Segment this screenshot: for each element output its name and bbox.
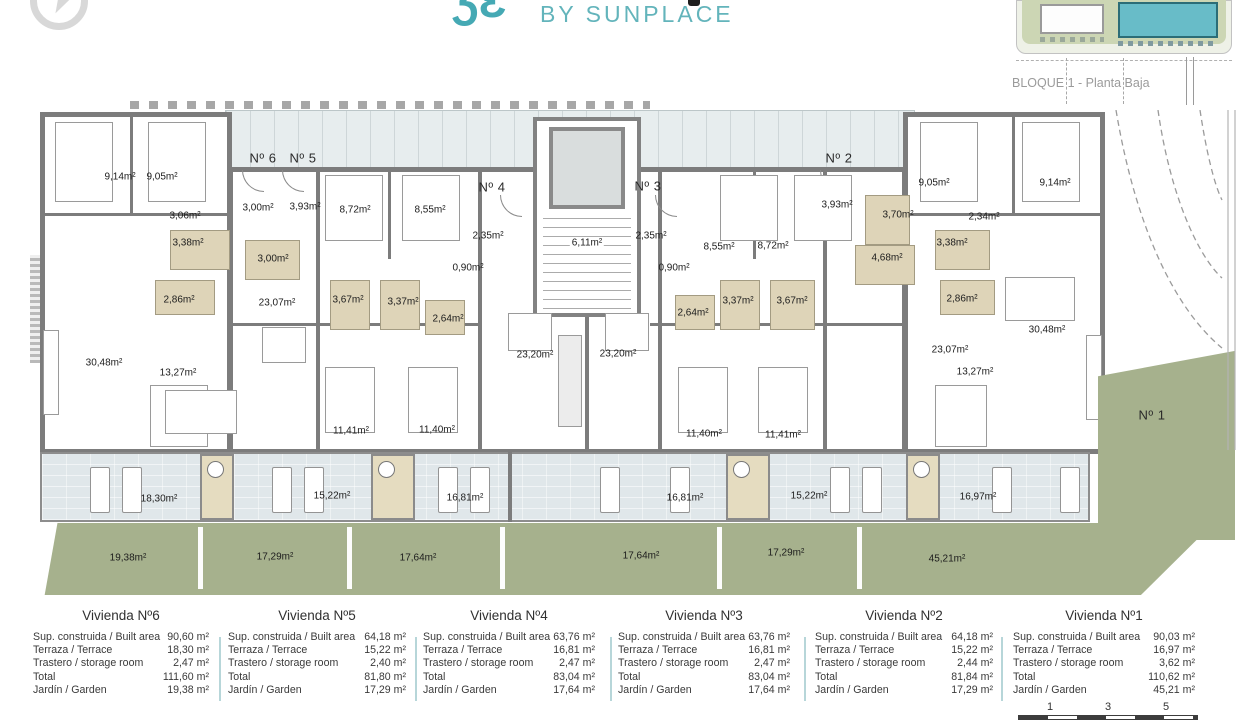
terrace-area-label: 18,30m² xyxy=(141,494,178,505)
elevator xyxy=(549,127,625,209)
garden-divider xyxy=(717,527,722,589)
row-label: Total xyxy=(1013,671,1035,684)
room-area-label: 3,00m² xyxy=(242,203,273,214)
row-value: 18,30 m² xyxy=(167,644,209,657)
row-value: 90,60 m² xyxy=(167,631,209,644)
row-label: Terraza / Terrace xyxy=(1013,644,1092,657)
table-divider xyxy=(610,637,612,701)
row-label: Jardín / Garden xyxy=(618,684,692,697)
room-area-label: 3,37m² xyxy=(722,296,753,307)
vivienda-column: Vivienda Nº4 Sup. construida / Built are… xyxy=(423,608,595,697)
bathroom-floor xyxy=(855,245,915,285)
garden-divider xyxy=(347,527,352,589)
kitchen-counter xyxy=(558,335,582,427)
garden-area-label: 17,29m² xyxy=(257,552,294,563)
row-label: Total xyxy=(423,671,445,684)
floor-plan: Nº 6 Nº 5 Nº 4 Nº 3 Nº 2 Nº 1 9,14m² 9,0… xyxy=(30,95,1220,605)
room-area-label: 3,67m² xyxy=(776,296,807,307)
room-area-label: 2,64m² xyxy=(677,308,708,319)
row-value: 63,76 m² xyxy=(748,631,790,644)
garden-area-label: 17,29m² xyxy=(768,548,805,559)
row-label: Trastero / storage room xyxy=(228,657,338,670)
room-wall xyxy=(1012,112,1015,215)
room-area-label: 9,05m² xyxy=(918,178,949,189)
washer-icon xyxy=(378,461,395,478)
table-divider xyxy=(415,637,417,701)
row-label: Total xyxy=(228,671,250,684)
row-value: 2,47 m² xyxy=(559,657,595,670)
row-label: Trastero / storage room xyxy=(423,657,533,670)
unit-number-label: Nº 2 xyxy=(826,151,853,166)
room-area-label: 8,55m² xyxy=(703,242,734,253)
room-wall xyxy=(585,317,589,454)
row-label: Jardín / Garden xyxy=(1013,684,1087,697)
row-label: Sup. construida / Built area xyxy=(1013,631,1140,644)
room-area-label: 23,07m² xyxy=(259,298,296,309)
vivienda-column: Vivienda Nº5 Sup. construida / Built are… xyxy=(228,608,406,697)
unit-number-label: Nº 1 xyxy=(1139,408,1166,423)
garden-divider xyxy=(857,527,862,589)
dining-table xyxy=(508,313,552,351)
sun-lounger xyxy=(670,467,690,513)
room-wall xyxy=(130,112,133,215)
terrace-area-label: 15,22m² xyxy=(791,491,828,502)
bed xyxy=(678,367,728,433)
storage-room xyxy=(200,454,234,520)
bed xyxy=(920,122,978,202)
room-area-label: 23,07m² xyxy=(932,345,969,356)
row-label: Total xyxy=(618,671,640,684)
sun-lounger xyxy=(600,467,620,513)
room-area-label: 3,93m² xyxy=(289,202,320,213)
key-plan-windows xyxy=(1040,37,1104,42)
sun-lounger xyxy=(1060,467,1080,513)
dining-table xyxy=(1005,277,1075,321)
row-label: Sup. construida / Built area xyxy=(618,631,745,644)
road-dashed-line xyxy=(1016,60,1232,61)
row-label: Jardín / Garden xyxy=(228,684,302,697)
table-divider xyxy=(804,637,806,701)
row-value: 16,97 m² xyxy=(1153,644,1195,657)
room-area-label: 3,67m² xyxy=(332,295,363,306)
washer-icon xyxy=(207,461,224,478)
boundary-curves xyxy=(1110,110,1240,455)
storage-room xyxy=(726,454,770,520)
bed xyxy=(720,175,778,241)
row-value: 17,64 m² xyxy=(553,684,595,697)
row-value: 90,03 m² xyxy=(1153,631,1195,644)
row-label: Jardín / Garden xyxy=(33,684,107,697)
room-area-label: 3,00m² xyxy=(257,254,288,265)
bed xyxy=(408,367,458,433)
vivienda-column: Vivienda Nº1 Sup. construida / Built are… xyxy=(1013,608,1195,697)
key-plan-building-2 xyxy=(1040,4,1104,34)
unit-number-label: Nº 6 xyxy=(250,151,277,166)
sun-lounger xyxy=(862,467,882,513)
row-label: Trastero / storage room xyxy=(33,657,143,670)
vivienda-column: Vivienda Nº3 Sup. construida / Built are… xyxy=(618,608,790,697)
dining-table xyxy=(262,327,306,363)
bathroom-floor xyxy=(935,230,990,270)
room-area-label: 3,70m² xyxy=(882,210,913,221)
compass-needle xyxy=(47,0,76,18)
vivienda-column: Vivienda Nº2 Sup. construida / Built are… xyxy=(815,608,993,697)
room-area-label: 6,11m² xyxy=(570,238,604,249)
row-value: 64,18 m² xyxy=(951,631,993,644)
site-key-plan xyxy=(1016,0,1232,56)
scale-tick: 5 xyxy=(1163,701,1169,713)
brand-subtitle: BY SUNPLACE xyxy=(540,1,734,28)
room-area-label: 9,05m² xyxy=(146,172,177,183)
garden-area-label: 17,64m² xyxy=(623,551,660,562)
room-area-label: 23,20m² xyxy=(600,349,637,360)
row-value: 63,76 m² xyxy=(553,631,595,644)
room-area-label: 2,35m² xyxy=(472,231,503,242)
room-area-label: 0,90m² xyxy=(452,263,483,274)
room-area-label: 30,48m² xyxy=(1029,325,1066,336)
bed xyxy=(1022,122,1080,202)
scale-bar xyxy=(1018,715,1198,720)
terrace-area-label: 16,81m² xyxy=(447,493,484,504)
garden-divider xyxy=(198,527,203,589)
room-area-label: 11,40m² xyxy=(419,425,455,436)
room-area-label: 11,40m² xyxy=(686,429,722,440)
washer-icon xyxy=(733,461,750,478)
room-area-label: 2,86m² xyxy=(163,295,194,306)
row-value: 45,21 m² xyxy=(1153,684,1195,697)
vivienda-title: Vivienda Nº2 xyxy=(815,608,993,623)
garden-area-label: 45,21m² xyxy=(929,554,966,565)
room-area-label: 11,41m² xyxy=(765,430,801,441)
row-value: 81,84 m² xyxy=(951,671,993,684)
row-value: 83,04 m² xyxy=(553,671,595,684)
storage-room xyxy=(371,454,415,520)
terrace-area-label: 16,97m² xyxy=(960,492,997,503)
row-value: 110,62 m² xyxy=(1148,671,1195,684)
vivienda-title: Vivienda Nº4 xyxy=(423,608,595,623)
row-value: 81,80 m² xyxy=(364,671,406,684)
row-value: 16,81 m² xyxy=(553,644,595,657)
row-label: Terraza / Terrace xyxy=(618,644,697,657)
room-area-label: 13,27m² xyxy=(160,368,197,379)
vivienda-title: Vivienda Nº6 xyxy=(33,608,209,623)
row-label: Sup. construida / Built area xyxy=(423,631,550,644)
row-value: 16,81 m² xyxy=(748,644,790,657)
dining-table xyxy=(605,313,649,351)
row-value: 2,47 m² xyxy=(173,657,209,670)
garden-area-label: 19,38m² xyxy=(110,553,147,564)
garden-divider xyxy=(500,527,505,589)
room-wall xyxy=(903,213,1105,216)
room-area-label: 11,41m² xyxy=(333,426,369,437)
sun-lounger xyxy=(438,467,458,513)
room-wall xyxy=(40,213,232,216)
stairs xyxy=(543,215,631,309)
bed xyxy=(325,367,375,433)
room-area-label: 2,86m² xyxy=(946,294,977,305)
sun-lounger xyxy=(470,467,490,513)
room-area-label: 8,72m² xyxy=(757,241,788,252)
row-label: Terraza / Terrace xyxy=(815,644,894,657)
party-wall xyxy=(478,167,482,454)
scale-tick: 1 xyxy=(1047,701,1053,713)
dining-table xyxy=(165,390,237,434)
row-value: 2,44 m² xyxy=(957,657,993,670)
compass-icon xyxy=(30,0,88,30)
room-area-label: 13,27m² xyxy=(957,367,994,378)
terrace-area-label: 16,81m² xyxy=(667,493,704,504)
row-label: Trastero / storage room xyxy=(1013,657,1123,670)
row-label: Trastero / storage room xyxy=(618,657,728,670)
row-value: 17,64 m² xyxy=(748,684,790,697)
bed xyxy=(758,367,808,433)
row-label: Sup. construida / Built area xyxy=(815,631,942,644)
row-label: Jardín / Garden xyxy=(423,684,497,697)
row-label: Total xyxy=(815,671,837,684)
row-value: 2,40 m² xyxy=(370,657,406,670)
vivienda-title: Vivienda Nº3 xyxy=(618,608,790,623)
sunplace-logo-mark-icon: ƷƐ xyxy=(424,0,534,26)
bed xyxy=(148,122,206,202)
washer-icon xyxy=(913,461,930,478)
room-area-label: 3,38m² xyxy=(172,238,203,249)
storage-room xyxy=(906,454,940,520)
room-area-label: 0,90m² xyxy=(658,263,689,274)
row-label: Sup. construida / Built area xyxy=(228,631,355,644)
sun-lounger xyxy=(90,467,110,513)
vivienda-title: Vivienda Nº5 xyxy=(228,608,406,623)
row-value: 17,29 m² xyxy=(951,684,993,697)
room-area-label: 2,34m² xyxy=(968,212,999,223)
roof-tick-strip xyxy=(130,101,650,109)
garden-area-label: 17,64m² xyxy=(400,553,437,564)
room-area-label: 9,14m² xyxy=(1039,178,1070,189)
row-label: Jardín / Garden xyxy=(815,684,889,697)
room-area-label: 8,55m² xyxy=(414,205,445,216)
room-area-label: 8,72m² xyxy=(339,205,370,216)
sun-lounger xyxy=(830,467,850,513)
row-value: 111,60 m² xyxy=(163,671,209,684)
terrace-area-label: 15,22m² xyxy=(314,491,351,502)
row-label: Terraza / Terrace xyxy=(33,644,112,657)
bed xyxy=(55,122,113,202)
balcony-hatch xyxy=(30,255,40,363)
row-value: 3,62 m² xyxy=(1159,657,1195,670)
row-value: 15,22 m² xyxy=(951,644,993,657)
row-value: 19,38 m² xyxy=(167,684,209,697)
table-divider xyxy=(1001,637,1003,701)
key-plan-building-1-highlight xyxy=(1118,2,1218,38)
table-divider xyxy=(219,637,221,701)
room-area-label: 9,14m² xyxy=(104,172,135,183)
row-value: 64,18 m² xyxy=(364,631,406,644)
room-area-label: 4,68m² xyxy=(871,253,902,264)
unit-number-label: Nº 4 xyxy=(479,180,506,195)
row-value: 83,04 m² xyxy=(748,671,790,684)
scale-tick: 3 xyxy=(1105,701,1111,713)
row-value: 17,29 m² xyxy=(364,684,406,697)
room-area-label: 3,93m² xyxy=(821,200,852,211)
terrace-divider-wall xyxy=(508,452,512,522)
row-label: Sup. construida / Built area xyxy=(33,631,160,644)
bed xyxy=(935,385,987,447)
row-label: Terraza / Terrace xyxy=(228,644,307,657)
unit-number-label: Nº 3 xyxy=(635,179,662,194)
unit-number-label: Nº 5 xyxy=(290,151,317,166)
key-plan-windows xyxy=(1118,41,1218,46)
sofa xyxy=(43,330,59,415)
room-area-label: 23,20m² xyxy=(517,350,554,361)
row-value: 15,22 m² xyxy=(364,644,406,657)
bathroom-floor xyxy=(170,230,230,270)
room-area-label: 3,06m² xyxy=(169,211,200,222)
row-value: 2,47 m² xyxy=(754,657,790,670)
room-area-label: 3,37m² xyxy=(387,297,418,308)
room-wall xyxy=(388,167,391,259)
vivienda-title: Vivienda Nº1 xyxy=(1013,608,1195,623)
row-label: Total xyxy=(33,671,55,684)
sun-lounger xyxy=(992,467,1012,513)
room-area-label: 2,64m² xyxy=(432,314,463,325)
room-area-label: 2,35m² xyxy=(635,231,666,242)
room-area-label: 3,38m² xyxy=(936,238,967,249)
vivienda-column: Vivienda Nº6 Sup. construida / Built are… xyxy=(33,608,209,697)
sun-lounger xyxy=(122,467,142,513)
sun-lounger xyxy=(272,467,292,513)
room-area-label: 30,48m² xyxy=(86,358,123,369)
row-label: Trastero / storage room xyxy=(815,657,925,670)
key-plan-caption: BLOQUE 1 - Planta Baja xyxy=(1012,76,1150,90)
row-label: Terraza / Terrace xyxy=(423,644,502,657)
